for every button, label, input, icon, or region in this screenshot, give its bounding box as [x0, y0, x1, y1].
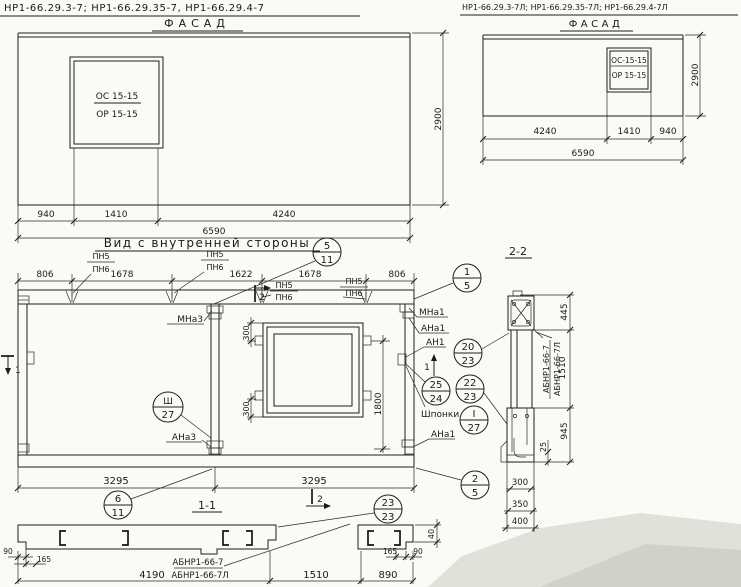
dim-4240: 4240	[273, 210, 296, 220]
pn5-label: ПН5	[275, 281, 292, 290]
window-mark-top: ОС 15-15	[96, 92, 138, 102]
section-mark-1-right: 1	[424, 354, 437, 376]
section-1-number: 1	[15, 366, 21, 376]
section-2-2-profile	[501, 291, 534, 462]
callout-bottom: 11	[112, 508, 125, 519]
dim-90-left: 90	[3, 547, 13, 556]
dim-300: 300	[512, 478, 528, 488]
label-mna1: МНа1	[419, 308, 445, 318]
callout-bottom: 23	[462, 356, 475, 367]
drawing-title-left: НР1-66.29.3-7; НР1-66.29.35-7, НР1-66.29…	[4, 3, 265, 14]
dim-3295-left: 3295	[103, 476, 128, 487]
anchor-labels: МНа3 МНа1 АНа1 АН1 Шпонки АНа3 АНа1	[166, 308, 459, 447]
dim-806b: 806	[388, 270, 405, 280]
callout-22-23: 22 23	[456, 375, 507, 424]
facade-right-window: ОС-15-15 ОР 15-15	[607, 48, 651, 92]
window-mark-top: ОС-15-15	[611, 56, 647, 65]
dim-2900: 2900	[434, 107, 444, 130]
callout-bottom: 27	[468, 423, 481, 434]
dim-2900: 2900	[691, 63, 701, 86]
callout-top: Ш	[163, 397, 173, 407]
dim-1510: 1510	[558, 356, 568, 379]
dim-300-bottom: 300	[242, 401, 251, 416]
callout-23-23: 23 23	[278, 495, 402, 527]
drawing-sheet: НР1-66.29.3-7; НР1-66.29.35-7, НР1-66.29…	[0, 0, 741, 587]
callout-top: 22	[464, 378, 477, 389]
section-2-number: 2	[317, 495, 323, 505]
label-abnr-l: АБНР1-66-7Л	[171, 571, 228, 581]
dim-1410: 1410	[105, 210, 128, 220]
dim-25: 25	[539, 442, 548, 452]
panel-outline	[18, 290, 414, 467]
label-ana3: АНа3	[172, 433, 196, 443]
dim-4190: 4190	[139, 570, 164, 581]
dim-890: 890	[378, 570, 397, 581]
dim-945: 945	[560, 422, 570, 439]
callout-2-5: 2 5	[416, 468, 489, 499]
window-mark-bottom: ОР 15-15	[96, 110, 138, 120]
inner-view: Вид с внутренней стороны 5 11 806 1678 1…	[1, 236, 509, 519]
section-2-2: 2-2 АБНР1-66-7 АБНР1-66-7Л	[501, 245, 574, 532]
window-mark-bottom: ОР 15-15	[612, 71, 647, 80]
dim-1678: 1678	[111, 270, 134, 280]
callout-bottom: 5	[464, 281, 470, 292]
pn6-label: ПН6	[206, 263, 223, 272]
window-dimensions: 300 300 1800	[242, 317, 390, 453]
section-title-2-2: 2-2	[509, 245, 527, 258]
section-1-1-profile	[18, 525, 413, 554]
dim-300-top: 300	[242, 325, 251, 340]
dim-90-right: 90	[413, 547, 423, 556]
callout-bottom: 24	[430, 394, 443, 405]
section-mark-2-bottom: 2	[306, 489, 331, 509]
callout-I-27: I 27	[460, 406, 488, 434]
callout-top: I	[473, 409, 476, 420]
dim-1678b: 1678	[299, 270, 322, 280]
pn5-label: ПН5	[92, 252, 109, 261]
pn5-label: ПН5	[206, 250, 223, 259]
dim-1800: 1800	[374, 392, 384, 415]
pn6-label: ПН6	[92, 265, 109, 274]
section-1-1: 90 165 165 90 40 4190 1510 890 АБНР1-66-…	[3, 495, 441, 584]
callout-bottom: 23	[382, 512, 395, 523]
dim-445: 445	[560, 303, 570, 320]
dim-4240: 4240	[534, 127, 557, 137]
callout-top: 5	[324, 241, 330, 252]
callout-bottom: 5	[472, 488, 478, 499]
label-ana1: АНа1	[421, 324, 445, 334]
panel-window	[255, 323, 371, 417]
dim-1410: 1410	[618, 127, 641, 137]
dim-40: 40	[427, 529, 436, 539]
callout-top: 2	[472, 474, 478, 485]
callout-top: 6	[115, 494, 121, 505]
dim-6590: 6590	[572, 149, 595, 159]
inner-view-bottom-dims: 3295 3295	[15, 467, 417, 493]
callout-3-27: Ш 27	[153, 392, 211, 438]
label-an1: АН1	[426, 338, 445, 348]
facade-left-title: ФАСАД	[164, 17, 230, 30]
dim-400: 400	[512, 517, 528, 527]
label-mna3: МНа3	[177, 315, 203, 325]
section-2-2-mark-labels: АБНР1-66-7 АБНР1-66-7Л 1510	[533, 329, 568, 399]
drawing-canvas: НР1-66.29.3-7; НР1-66.29.35-7, НР1-66.29…	[0, 0, 741, 587]
section-1-1-title: 1-1	[192, 499, 222, 512]
callout-top: 20	[462, 342, 475, 353]
dim-165-left: 165	[37, 555, 52, 564]
pn6-label: ПН6	[275, 293, 292, 302]
callout-bottom: 23	[464, 392, 477, 403]
label-ana1-bottom: АНа1	[431, 430, 455, 440]
callout-top: 23	[382, 498, 395, 509]
pn-label-1: ПН5 ПН6	[73, 252, 115, 293]
dim-940: 940	[659, 127, 676, 137]
dim-940: 940	[37, 210, 54, 220]
dim-3295-right: 3295	[301, 476, 326, 487]
callout-1-5: 1 5	[414, 264, 481, 299]
facade-left-window: ОС 15-15 ОР 15-15	[70, 57, 163, 148]
dim-806: 806	[36, 270, 53, 280]
callout-20-23: 20 23	[454, 333, 509, 367]
dim-1622: 1622	[230, 270, 253, 280]
callout-bottom: 11	[321, 255, 334, 266]
dim-350: 350	[512, 500, 528, 510]
section-2-2-dims: 445 945 25 300 350 400	[502, 292, 574, 532]
scan-shadow	[428, 513, 741, 587]
facade-left-dimensions: 940 1410 4240 6590 2900	[15, 30, 449, 243]
drawing-title-right: НР1-66.29.3-7Л; НР1-66.29.35-7Л; НР1-66.…	[462, 3, 668, 12]
pn5-label: ПН5	[345, 277, 362, 286]
label-shponki: Шпонки	[421, 410, 459, 420]
pn-label-2: ПН5 ПН6	[174, 250, 229, 293]
pn-label-3: ПН5 ПН6	[263, 281, 298, 302]
facade-right-title: ФАСАД	[569, 19, 624, 30]
callout-top: 1	[464, 267, 470, 278]
inner-view-title: Вид с внутренней стороны	[104, 236, 310, 250]
callout-bottom: 27	[162, 410, 175, 421]
facade-right: НР1-66.29.3-7Л; НР1-66.29.35-7Л; НР1-66.…	[460, 3, 738, 165]
facade-left: НР1-66.29.3-7; НР1-66.29.35-7, НР1-66.29…	[0, 3, 449, 243]
pn-label-4: ПН5 ПН6	[340, 277, 368, 299]
section-1-number: 1	[424, 363, 430, 373]
callout-top: 25	[430, 380, 443, 391]
section-title-1-1: 1-1	[198, 499, 216, 512]
facade-right-dimensions: 4240 1410 940 6590 2900	[480, 32, 706, 165]
dim-165-right: 165	[383, 547, 398, 556]
label-abnr: АБНР1-66-7	[173, 558, 224, 568]
dim-1510: 1510	[303, 570, 328, 581]
